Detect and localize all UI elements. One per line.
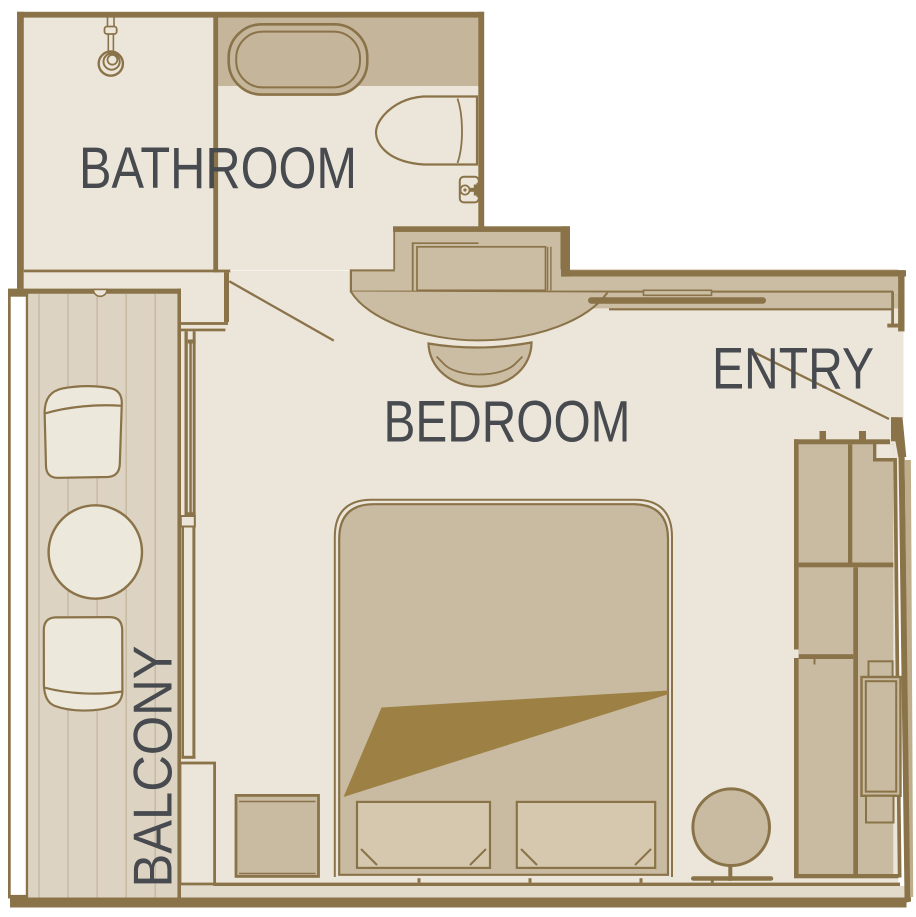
svg-text:BALCONY: BALCONY — [122, 646, 183, 888]
svg-text:ENTRY: ENTRY — [712, 336, 874, 401]
svg-text:BATHROOM: BATHROOM — [79, 136, 357, 201]
svg-text:BEDROOM: BEDROOM — [384, 390, 631, 455]
